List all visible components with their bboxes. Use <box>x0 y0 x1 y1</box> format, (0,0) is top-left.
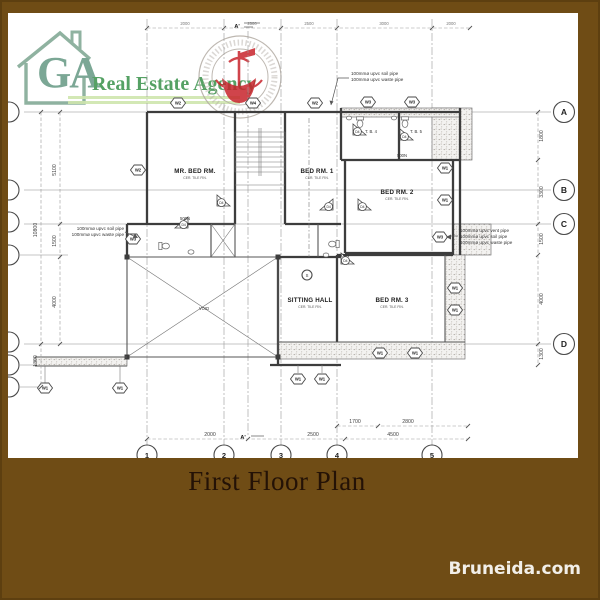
svg-text:1300: 1300 <box>33 355 39 367</box>
staircase <box>235 128 285 185</box>
svg-text:4000: 4000 <box>52 296 58 308</box>
svg-text:VOID: VOID <box>199 306 209 311</box>
dimension-right: 1800 3300 1500 4000 1300 <box>536 110 545 367</box>
grid-bubbles-bottom: 1 2 3 4 5 <box>137 445 442 458</box>
svg-text:CER. TILE FIN.: CER. TILE FIN. <box>298 305 322 309</box>
room-labels: MR. BED RM. CER. TILE FIN. BED RM. 1 CER… <box>174 129 422 309</box>
svg-text:3300: 3300 <box>539 186 545 198</box>
svg-text:100mmø upvc soil pipe: 100mmø upvc soil pipe <box>351 71 399 76</box>
svg-text:10800: 10800 <box>33 223 39 238</box>
section-line: A' A' <box>234 23 264 441</box>
svg-text:W1: W1 <box>442 198 449 203</box>
svg-text:100mmø upvc soil pipe: 100mmø upvc soil pipe <box>460 234 508 239</box>
svg-text:100mmø upvc vent pipe: 100mmø upvc vent pipe <box>460 228 509 233</box>
dimension-bottom: 2000 2500 4500 1700 2800 <box>145 419 470 441</box>
listing-image: GA Real Estate Agency <box>0 0 600 600</box>
grid-bubbles-right: A B C D <box>554 102 575 355</box>
grid-bubbles-left <box>8 102 19 397</box>
svg-text:W1: W1 <box>42 386 49 391</box>
grid-lines-vertical <box>147 19 432 449</box>
svg-text:A: A <box>561 107 567 117</box>
floor-plan-drawing: A' A' <box>8 13 578 458</box>
svg-text:W1: W1 <box>442 166 449 171</box>
svg-text:T. B. 4: T. B. 4 <box>365 129 378 134</box>
svg-text:MR. BED RM.: MR. BED RM. <box>174 168 215 175</box>
svg-text:A': A' <box>234 24 240 30</box>
wall-lines <box>127 108 465 365</box>
svg-text:2500: 2500 <box>304 21 314 26</box>
svg-text:100mmø upvc waste pipe: 100mmø upvc waste pipe <box>72 232 125 237</box>
svg-text:W2: W2 <box>135 168 142 173</box>
svg-text:BED RM. 3: BED RM. 3 <box>375 297 408 304</box>
drawing-sheet: GA Real Estate Agency <box>8 13 578 458</box>
svg-text:500N: 500N <box>397 153 407 158</box>
svg-text:W3: W3 <box>409 100 416 105</box>
svg-text:W1: W1 <box>412 351 419 356</box>
svg-text:W1: W1 <box>452 286 459 291</box>
svg-text:100mmø upvc soil pipe: 100mmø upvc soil pipe <box>77 226 125 231</box>
svg-text:W1: W1 <box>295 377 302 382</box>
svg-text:W1: W1 <box>319 377 326 382</box>
svg-text:CER. TILE FIN.: CER. TILE FIN. <box>380 305 404 309</box>
svg-text:1500: 1500 <box>539 233 545 245</box>
svg-text:2000: 2000 <box>180 21 190 26</box>
svg-text:100mmø upvc waste pipe: 100mmø upvc waste pipe <box>460 240 513 245</box>
svg-text:W2: W2 <box>312 101 319 106</box>
svg-text:W3: W3 <box>437 235 444 240</box>
svg-text:CER. TILE FIN.: CER. TILE FIN. <box>305 176 329 180</box>
svg-text:2500: 2500 <box>247 21 257 26</box>
svg-text:W4: W4 <box>250 101 257 106</box>
svg-text:D4: D4 <box>355 130 359 134</box>
svg-text:W1: W1 <box>377 351 384 356</box>
caption-title: First Floor Plan <box>157 466 397 497</box>
svg-text:2800: 2800 <box>402 419 414 425</box>
svg-text:D4: D4 <box>402 135 406 139</box>
svg-text:2000: 2000 <box>204 432 216 438</box>
svg-text:SITTING HALL: SITTING HALL <box>287 297 332 304</box>
svg-text:W3: W3 <box>365 100 372 105</box>
svg-text:D4: D4 <box>181 223 185 227</box>
dimension-top: 2000 2500 2500 3000 2000 <box>145 21 472 30</box>
svg-text:C: C <box>561 219 567 229</box>
svg-text:B: B <box>561 185 567 195</box>
svg-text:D4: D4 <box>326 205 330 209</box>
svg-text:D: D <box>561 339 567 349</box>
svg-text:5100: 5100 <box>52 164 58 176</box>
svg-text:2500: 2500 <box>307 432 319 438</box>
svg-text:3000: 3000 <box>379 21 389 26</box>
svg-text:D4: D4 <box>343 259 347 263</box>
svg-text:T. B. 5: T. B. 5 <box>410 129 423 134</box>
svg-text:S: S <box>306 273 309 278</box>
svg-text:1300: 1300 <box>539 348 545 360</box>
svg-text:3: 3 <box>279 451 283 458</box>
svg-text:1700: 1700 <box>349 419 361 425</box>
svg-text:CER. TILE FIN.: CER. TILE FIN. <box>183 176 207 180</box>
svg-text:D4: D4 <box>360 205 364 209</box>
svg-text:BED RM. 1: BED RM. 1 <box>300 168 333 175</box>
svg-text:4500: 4500 <box>387 432 399 438</box>
dimension-left: 5100 1500 4000 10800 1300 <box>33 110 62 389</box>
svg-text:2000: 2000 <box>446 21 456 26</box>
svg-text:5: 5 <box>430 451 434 458</box>
svg-text:CER. TILE FIN.: CER. TILE FIN. <box>385 197 409 201</box>
svg-text:1800: 1800 <box>539 130 545 142</box>
svg-text:BED RM. 2: BED RM. 2 <box>380 189 413 196</box>
svg-text:1: 1 <box>145 451 149 458</box>
svg-text:W1: W1 <box>117 386 124 391</box>
svg-text:500N: 500N <box>339 253 349 258</box>
svg-text:W1: W1 <box>452 308 459 313</box>
site-watermark: Bruneida.com <box>449 559 581 579</box>
svg-text:W2: W2 <box>175 101 182 106</box>
svg-text:500N: 500N <box>180 216 190 221</box>
svg-text:D4: D4 <box>219 201 223 205</box>
svg-text:2: 2 <box>222 451 226 458</box>
svg-text:1500: 1500 <box>52 235 58 247</box>
svg-text:100mmø upvc waste pipe: 100mmø upvc waste pipe <box>351 77 404 82</box>
svg-text:A': A' <box>240 435 246 441</box>
svg-text:4000: 4000 <box>539 293 545 305</box>
